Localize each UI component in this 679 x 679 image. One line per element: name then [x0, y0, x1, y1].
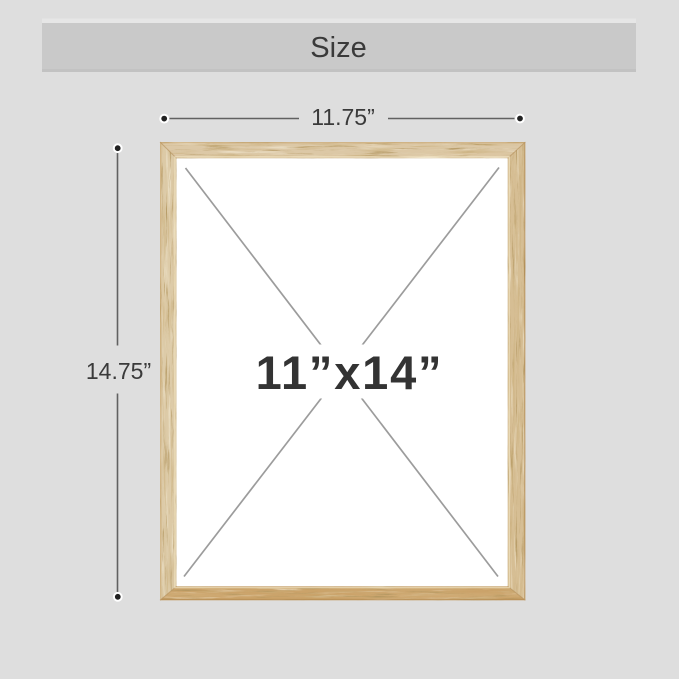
- svg-text:11”x14”: 11”x14”: [256, 346, 444, 399]
- svg-text:11.75”: 11.75”: [311, 104, 375, 130]
- svg-text:Size: Size: [310, 32, 366, 64]
- svg-text:14.75”: 14.75”: [86, 358, 151, 384]
